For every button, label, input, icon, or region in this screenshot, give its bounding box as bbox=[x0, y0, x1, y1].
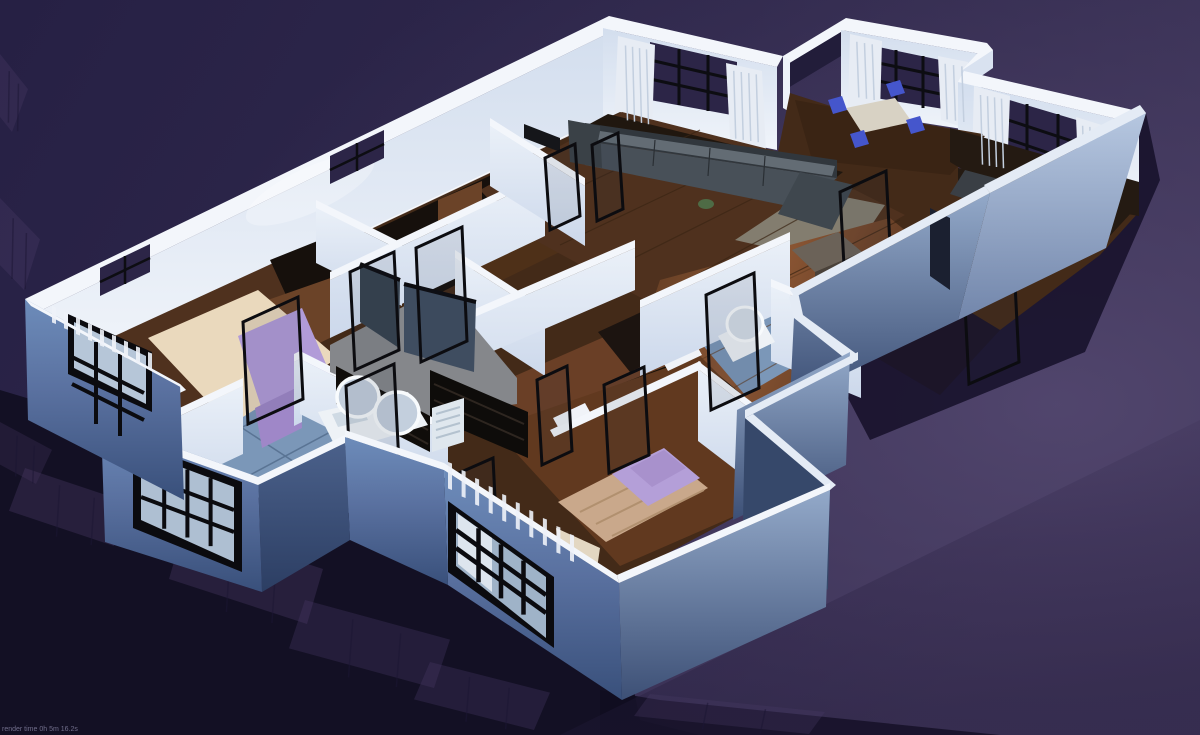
svg-text:render time 0h 5m 16.2s: render time 0h 5m 16.2s bbox=[2, 726, 78, 733]
